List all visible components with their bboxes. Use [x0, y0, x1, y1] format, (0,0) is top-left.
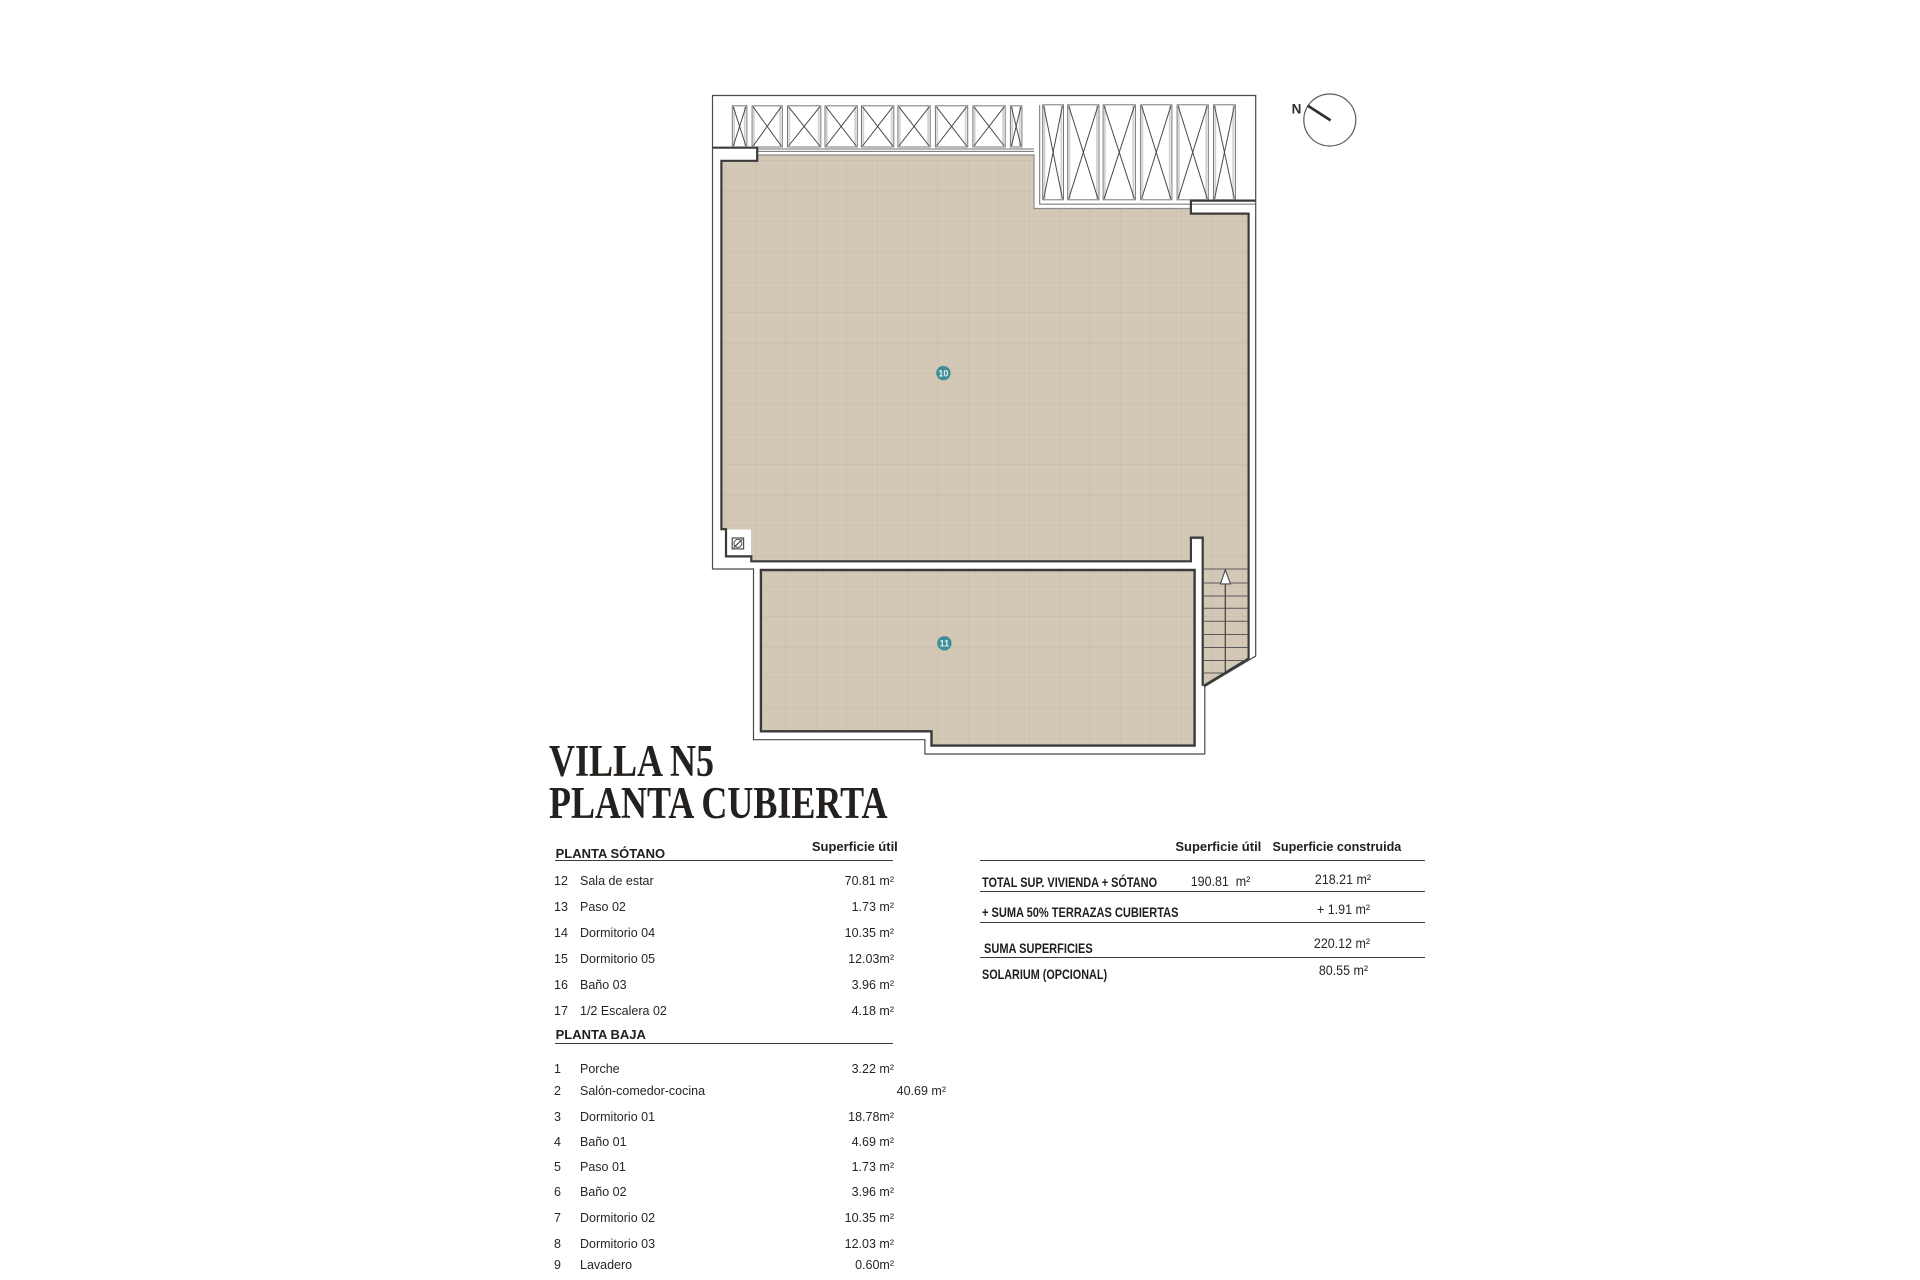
svg-text:N: N	[1292, 102, 1302, 117]
svg-text:10: 10	[938, 368, 948, 378]
svg-text:11: 11	[940, 639, 950, 649]
